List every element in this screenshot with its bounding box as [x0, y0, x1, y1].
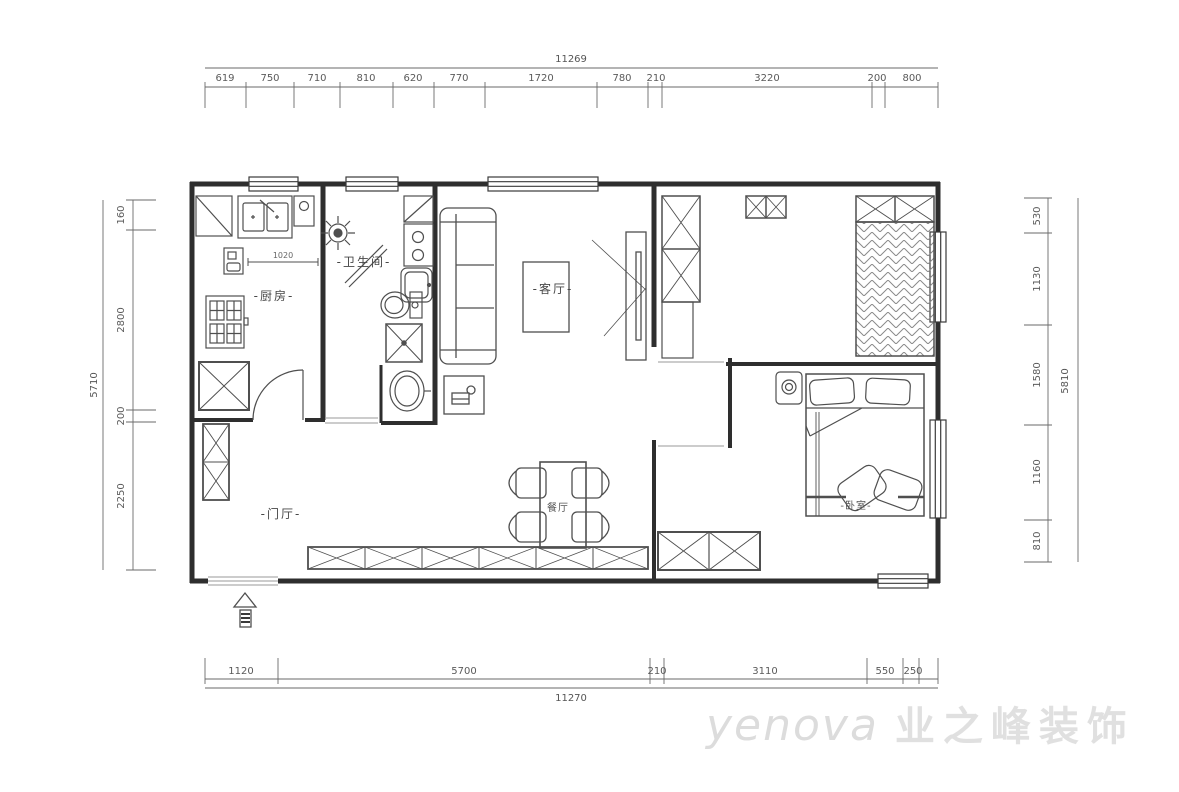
dim-top-8: 210: [646, 73, 665, 84]
dim-right-3: 1160: [1032, 459, 1043, 484]
dim-right-4: 810: [1032, 531, 1043, 550]
kitchen-sink: [238, 196, 292, 238]
dimension-bottom: 1120 5700 210 3110 550 250 11270: [205, 658, 938, 704]
entry-arrow-icon: [234, 593, 256, 627]
living-room-label: -客厅-: [533, 281, 574, 296]
dim-left-1: 2800: [116, 307, 127, 332]
bathroom-corner-cabinet: [404, 196, 433, 222]
kitchen-door: [253, 370, 303, 420]
dim-bottom-total: 11270: [555, 693, 587, 704]
dim-top-1: 750: [260, 73, 279, 84]
dim-left-2: 200: [116, 406, 127, 425]
hall-label: -门厅-: [261, 506, 302, 521]
dim-left-0: 160: [116, 205, 127, 224]
kitchen-label: -厨房-: [254, 288, 295, 303]
water-heater: [404, 224, 433, 266]
dim-top-11: 800: [902, 73, 921, 84]
room-labels: -厨房- -卫生间- -客厅- 餐厅 -门厅- -卧室- 1020: [254, 251, 872, 521]
nightstand-lamp: [776, 372, 802, 404]
bathroom-fixtures: [321, 196, 433, 411]
dim-top-9: 3220: [754, 73, 779, 84]
bathroom-label: -卫生间-: [337, 255, 392, 269]
dim-top-2: 710: [307, 73, 326, 84]
dim-top-3: 810: [356, 73, 375, 84]
dim-top-10: 200: [867, 73, 886, 84]
dim-right-1: 1130: [1032, 266, 1043, 291]
dim-right-0: 530: [1032, 206, 1043, 225]
window-bottom-bedroom: [878, 574, 928, 588]
dimension-right: 530 1130 1580 1160 810 5810: [1024, 198, 1078, 562]
window-top-bathroom: [346, 177, 398, 191]
bedroom-furniture: [658, 372, 924, 570]
exhaust-fan-icon: [321, 216, 355, 250]
double-bed: [806, 374, 924, 516]
sofa: [440, 208, 496, 364]
kitchen-furniture: [196, 196, 318, 420]
stove: [206, 296, 248, 348]
dim-top-total: 11269: [555, 54, 587, 65]
dim-left-3: 2250: [116, 483, 127, 508]
hall-furniture: [203, 424, 256, 627]
window-right-bedroom: [930, 420, 946, 518]
dim-left-total: 5710: [89, 372, 100, 397]
dining-label: 餐厅: [547, 501, 569, 514]
bedroom-cabinet: [658, 532, 760, 570]
dim-bottom-5: 250: [903, 666, 922, 677]
floor-plan-svg: -厨房- -卫生间- -客厅- 餐厅 -门厅- -卧室- 1020 11269 …: [0, 0, 1179, 792]
dining-chair: [572, 468, 609, 498]
dining-furniture: [308, 462, 648, 569]
dim-top-6: 1720: [528, 73, 553, 84]
living-room-furniture: [440, 208, 646, 414]
dim-bottom-0: 1120: [228, 666, 253, 677]
dim-right-2: 1580: [1032, 362, 1043, 387]
dim-bottom-3: 3110: [752, 666, 777, 677]
study-room-furniture: [662, 196, 934, 358]
shoe-cabinet: [203, 424, 229, 500]
window-top-kitchen: [249, 177, 298, 191]
dim-right-total: 5810: [1060, 368, 1071, 393]
floor-plan-page: -厨房- -卫生间- -客厅- 餐厅 -门厅- -卧室- 1020 11269 …: [0, 0, 1179, 792]
overhead-cabinet: [746, 196, 786, 218]
kitchen-hob-unit: [294, 196, 314, 226]
bedroom-label: -卧室-: [840, 499, 871, 512]
shower-tray: [386, 324, 422, 362]
side-table: [444, 376, 484, 414]
flue-column: [199, 362, 249, 410]
dim-bottom-1: 5700: [451, 666, 476, 677]
dim-bottom-4: 550: [875, 666, 894, 677]
dimension-left: 160 2800 200 2250 5710: [89, 200, 156, 570]
tatami-bed: [856, 196, 934, 356]
dim-top-4: 620: [403, 73, 422, 84]
bathtub-basin: [390, 371, 431, 411]
coffee-table: [523, 262, 569, 332]
door-openings: [208, 362, 724, 585]
dimension-top: 11269 619 750 710 810 620 770 1720 780 2…: [205, 54, 938, 108]
windows: [249, 177, 946, 588]
dining-chair: [572, 512, 609, 542]
wardrobe: [662, 196, 700, 358]
sideboard: [308, 547, 648, 569]
dim-top-0: 619: [215, 73, 234, 84]
dim-top-5: 770: [449, 73, 468, 84]
corner-counter: [196, 196, 232, 236]
dim-top-7: 780: [612, 73, 631, 84]
window-top-living: [488, 177, 598, 191]
counter-width-label: 1020: [273, 251, 293, 260]
dim-bottom-2: 210: [647, 666, 666, 677]
tv-unit: [592, 232, 646, 360]
small-appliance: [224, 248, 243, 274]
